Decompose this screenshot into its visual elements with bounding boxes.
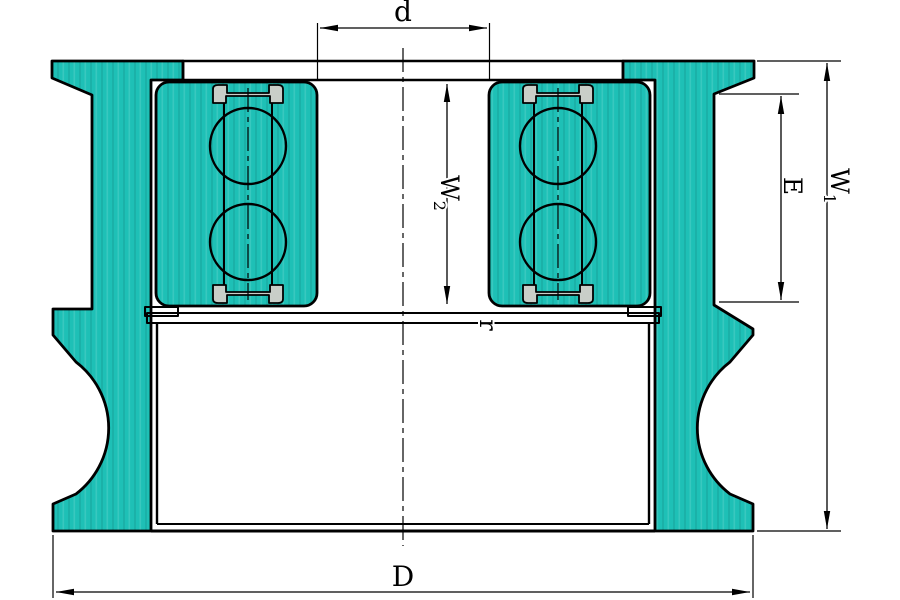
right-bearing-rings-section — [489, 82, 650, 306]
e-dimension-label: E — [778, 177, 807, 195]
r-radius-label: r — [474, 319, 502, 331]
left-bearing — [156, 82, 317, 306]
d-dimension-label: d — [394, 0, 412, 28]
right-bearing — [489, 82, 650, 306]
left-bearing-rings-section — [156, 82, 317, 306]
D-dimension-label: D — [392, 560, 414, 593]
pulley-bearing-section-drawing: d W2 r E W1 D — [0, 0, 900, 600]
